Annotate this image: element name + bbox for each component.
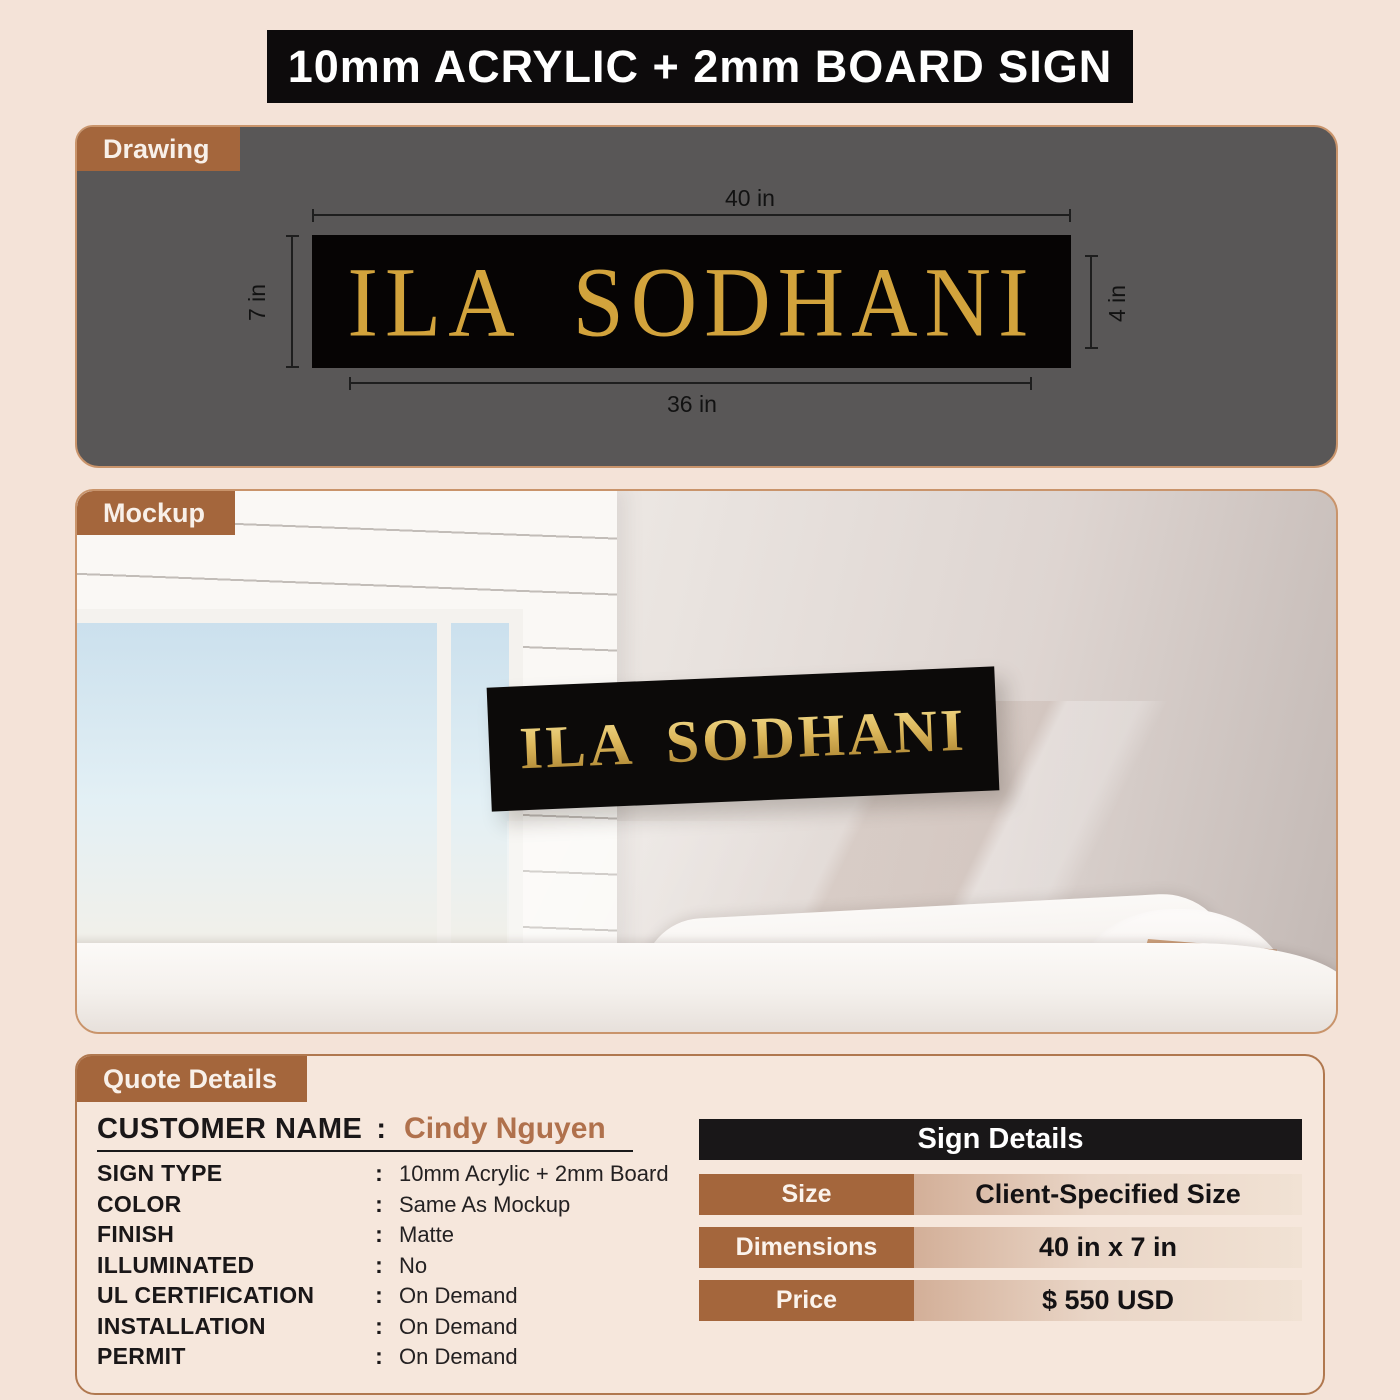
colon: : bbox=[359, 1221, 399, 1248]
sign-details-row: Price $ 550 USD bbox=[699, 1280, 1302, 1321]
row-value: $ 550 USD bbox=[914, 1280, 1302, 1321]
dimension-line-left bbox=[291, 235, 293, 368]
field-value: Same As Mockup bbox=[399, 1192, 677, 1218]
colon: : bbox=[359, 1343, 399, 1370]
row-label: Size bbox=[699, 1174, 914, 1215]
mockup-window bbox=[75, 609, 523, 961]
sign-drawing: ILA SODHANI bbox=[312, 235, 1071, 368]
field-label: ILLUMINATED bbox=[97, 1252, 359, 1279]
quote-field-row: UL CERTIFICATION : On Demand bbox=[97, 1282, 677, 1313]
field-label: UL CERTIFICATION bbox=[97, 1282, 359, 1309]
row-value: Client-Specified Size bbox=[914, 1174, 1302, 1215]
quote-sheet: 10mm ACRYLIC + 2mm BOARD SIGN Drawing 40… bbox=[0, 0, 1400, 1400]
drawing-tab: Drawing bbox=[77, 127, 240, 171]
sign-details-row: Size Client-Specified Size bbox=[699, 1174, 1302, 1215]
drawing-section: Drawing 40 in ILA SODHANI 7 in 4 in 36 i… bbox=[75, 125, 1338, 468]
field-value: Matte bbox=[399, 1222, 677, 1248]
mockup-tab: Mockup bbox=[77, 491, 235, 535]
colon: : bbox=[359, 1160, 399, 1187]
row-label: Dimensions bbox=[699, 1227, 914, 1268]
field-label: INSTALLATION bbox=[97, 1313, 359, 1340]
customer-name-label: CUSTOMER NAME bbox=[97, 1113, 362, 1146]
dimension-line-bottom bbox=[349, 382, 1032, 384]
quote-details-tab: Quote Details bbox=[77, 1056, 307, 1102]
mockup-sign: ILA SODHANI bbox=[487, 666, 1000, 811]
colon: : bbox=[376, 1113, 386, 1146]
field-value: On Demand bbox=[399, 1283, 677, 1309]
mockup-reception-desk bbox=[75, 943, 1338, 1034]
quote-field-row: ILLUMINATED : No bbox=[97, 1252, 677, 1283]
field-label: COLOR bbox=[97, 1191, 359, 1218]
dimension-line-top bbox=[312, 214, 1071, 216]
field-value: 10mm Acrylic + 2mm Board bbox=[399, 1161, 677, 1187]
customer-name-value: Cindy Nguyen bbox=[404, 1112, 606, 1146]
quote-field-row: FINISH : Matte bbox=[97, 1221, 677, 1252]
sign-drawing-text: ILA SODHANI bbox=[347, 252, 1035, 351]
dimension-label-top: 40 in bbox=[725, 185, 775, 212]
mockup-section: ILA SODHANI Mockup bbox=[75, 489, 1338, 1034]
sign-details-table: Sign Details Size Client-Specified Size … bbox=[699, 1119, 1302, 1333]
row-value: 40 in x 7 in bbox=[914, 1227, 1302, 1268]
page-title: 10mm ACRYLIC + 2mm BOARD SIGN bbox=[267, 30, 1133, 103]
quote-field-row: COLOR : Same As Mockup bbox=[97, 1191, 677, 1222]
customer-underline bbox=[97, 1150, 633, 1152]
mockup-window-mullion bbox=[437, 623, 451, 947]
row-label: Price bbox=[699, 1280, 914, 1321]
dimension-label-bottom: 36 in bbox=[667, 391, 717, 418]
colon: : bbox=[359, 1252, 399, 1279]
quote-fields: SIGN TYPE : 10mm Acrylic + 2mm Board COL… bbox=[97, 1160, 677, 1374]
dimension-label-right: 4 in bbox=[1104, 285, 1131, 322]
field-label: FINISH bbox=[97, 1221, 359, 1248]
quote-field-row: INSTALLATION : On Demand bbox=[97, 1313, 677, 1344]
mockup-sign-text: ILA SODHANI bbox=[518, 700, 968, 779]
field-value: On Demand bbox=[399, 1314, 677, 1340]
dimension-line-right bbox=[1090, 255, 1092, 349]
colon: : bbox=[359, 1313, 399, 1340]
quote-details-section: Quote Details CUSTOMER NAME : Cindy Nguy… bbox=[75, 1054, 1325, 1395]
quote-field-row: PERMIT : On Demand bbox=[97, 1343, 677, 1374]
sign-details-header: Sign Details bbox=[699, 1119, 1302, 1160]
field-value: On Demand bbox=[399, 1344, 677, 1370]
field-label: SIGN TYPE bbox=[97, 1160, 359, 1187]
dimension-label-left: 7 in bbox=[244, 284, 271, 321]
sign-details-row: Dimensions 40 in x 7 in bbox=[699, 1227, 1302, 1268]
quote-field-row: SIGN TYPE : 10mm Acrylic + 2mm Board bbox=[97, 1160, 677, 1191]
customer-name-row: CUSTOMER NAME : Cindy Nguyen bbox=[97, 1112, 606, 1146]
field-value: No bbox=[399, 1253, 677, 1279]
field-label: PERMIT bbox=[97, 1343, 359, 1370]
colon: : bbox=[359, 1191, 399, 1218]
colon: : bbox=[359, 1282, 399, 1309]
